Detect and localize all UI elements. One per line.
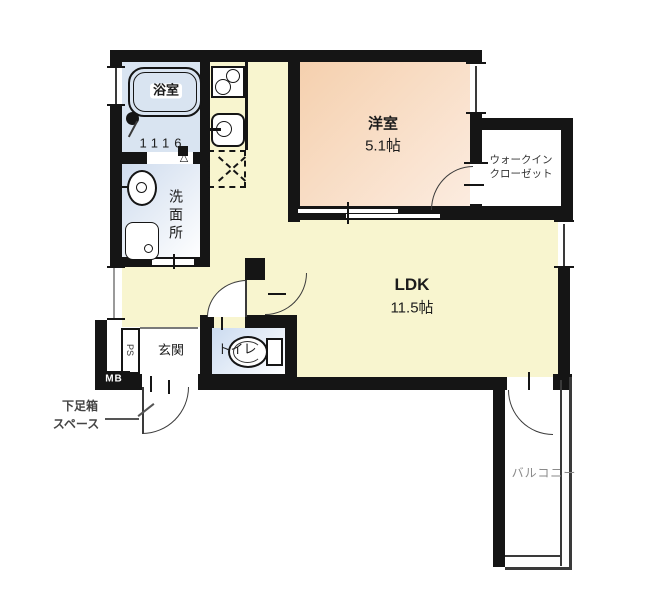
- wall-closet-top: [470, 118, 573, 130]
- ldk-window-line: [563, 224, 565, 266]
- walk-in-closet-label-2: クローゼット: [490, 168, 553, 180]
- pipe-space-label: PS: [125, 344, 135, 356]
- hall-floor: [122, 267, 212, 327]
- wall-toilet-right: [285, 315, 297, 380]
- meter-box-label: MB: [105, 373, 123, 385]
- western-room-label: 洋室: [368, 115, 398, 132]
- hall-window-line: [113, 268, 115, 318]
- ldk-area: 11.5帖: [390, 299, 433, 316]
- shoe-box-label-1: 下足箱: [62, 400, 98, 414]
- toilet-tank-icon: [266, 338, 283, 366]
- wall-left-lower: [95, 320, 107, 377]
- shoe-box-leader-line: [105, 418, 139, 420]
- washbasin-drain: [144, 244, 153, 253]
- wall-bottom-main: [285, 377, 507, 390]
- stove-burner-2: [215, 79, 231, 95]
- meter-box: MB: [98, 371, 130, 386]
- washbasin-icon: [125, 222, 159, 260]
- floor-plan: △ MB: [0, 0, 652, 606]
- shoe-box-label-2: スペース: [53, 418, 100, 432]
- bathroom-unit-size: 1116: [140, 137, 187, 152]
- entrance-door-arc: [142, 387, 189, 434]
- hall-door-leaf: [245, 280, 247, 317]
- bathroom-window-line: [115, 68, 117, 106]
- balcony-label: バルコニー: [512, 467, 577, 481]
- balcony-rail-bottom-outer: [505, 567, 572, 570]
- toilet-label: トイレ: [217, 343, 256, 358]
- wall-balcony-left: [493, 377, 505, 567]
- refrigerator-space-icon: [208, 150, 246, 188]
- bathroom-label: 浴室: [150, 84, 182, 99]
- kitchen-counter-line: [245, 62, 248, 150]
- western-room-window-line: [475, 66, 477, 112]
- ldk-label: LDK: [395, 275, 430, 295]
- balcony-rail-bottom-inner: [505, 555, 562, 557]
- washroom-label: 洗面所: [168, 189, 184, 243]
- wall-western-left: [288, 50, 300, 222]
- walk-in-closet-label-1: ウォークイン: [490, 154, 553, 166]
- entrance-label: 玄関: [158, 344, 184, 359]
- wall-hall-stub: [245, 258, 265, 280]
- western-room-area: 5.1帖: [365, 137, 401, 154]
- washing-machine-dial: [136, 182, 147, 193]
- sliding-door-leaf-2: [346, 214, 440, 218]
- entrance-step-line: [140, 327, 198, 329]
- wall-closet-right: [561, 118, 573, 218]
- ps-niche-floor: [105, 320, 122, 377]
- wall-bottom-left-b: [198, 374, 288, 390]
